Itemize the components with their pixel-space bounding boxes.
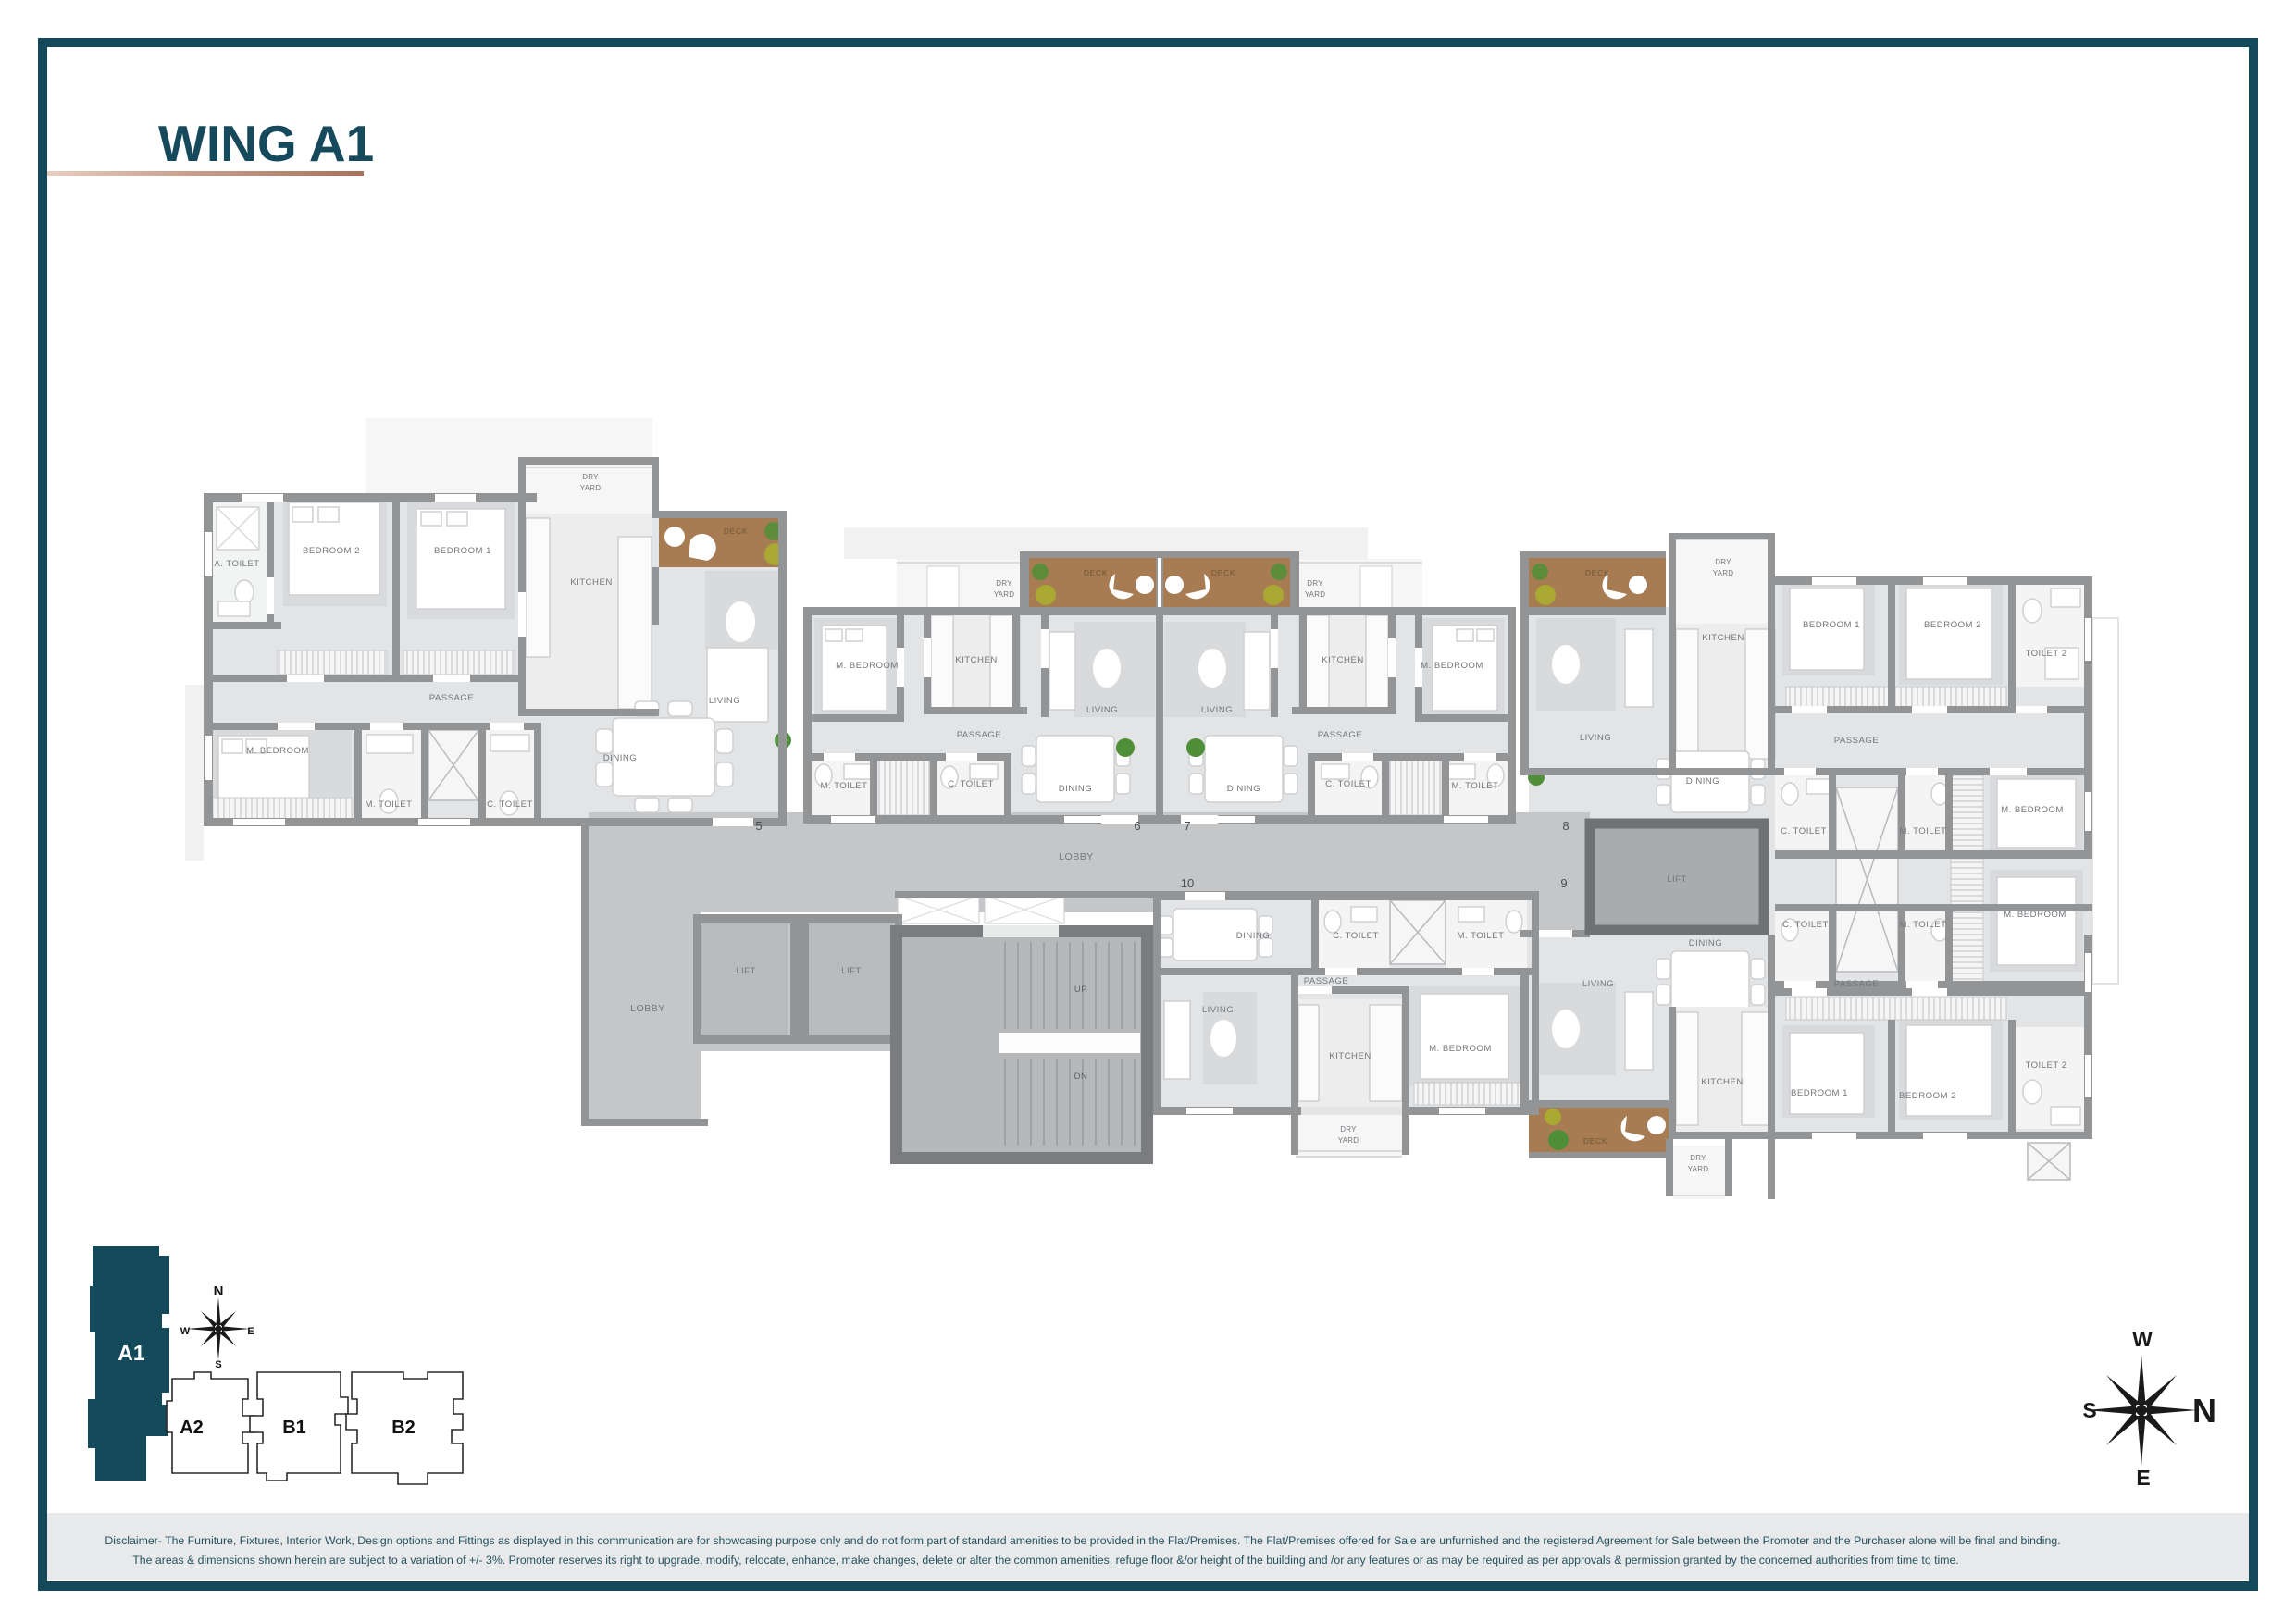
svg-text:DINING: DINING	[1686, 776, 1719, 787]
svg-text:N: N	[2192, 1392, 2216, 1430]
svg-text:DECK: DECK	[1583, 1136, 1607, 1146]
svg-text:DINING: DINING	[1059, 784, 1092, 794]
svg-text:LIVING: LIVING	[709, 696, 740, 706]
svg-text:E: E	[247, 1326, 254, 1337]
svg-text:WING A1: WING A1	[158, 115, 374, 172]
svg-text:M. TOILET: M. TOILET	[821, 781, 868, 791]
svg-text:DINING: DINING	[1236, 931, 1270, 941]
svg-text:BEDROOM 2: BEDROOM 2	[1924, 620, 1981, 630]
svg-text:BEDROOM 2: BEDROOM 2	[1899, 1091, 1956, 1101]
svg-text:C. TOILET: C. TOILET	[948, 779, 994, 789]
svg-text:LOBBY: LOBBY	[1059, 851, 1094, 862]
svg-text:LIFT: LIFT	[1667, 874, 1687, 885]
svg-text:YARD: YARD	[580, 484, 602, 492]
svg-text:DECK: DECK	[1211, 568, 1235, 577]
svg-text:DN: DN	[1074, 1072, 1088, 1082]
svg-text:A1: A1	[118, 1341, 145, 1365]
svg-text:KITCHEN: KITCHEN	[1329, 1051, 1371, 1061]
svg-text:DRY: DRY	[582, 473, 599, 481]
svg-text:8: 8	[1562, 819, 1569, 833]
svg-text:YARD: YARD	[1713, 569, 1734, 577]
svg-text:LIVING: LIVING	[1086, 705, 1118, 715]
svg-text:DECK: DECK	[1585, 568, 1609, 577]
svg-text:M. TOILET: M. TOILET	[366, 799, 413, 810]
svg-text:C. TOILET: C. TOILET	[1781, 826, 1827, 836]
svg-text:DECK: DECK	[1084, 568, 1108, 577]
svg-text:7: 7	[1184, 819, 1190, 833]
svg-text:DRY: DRY	[996, 579, 1012, 588]
svg-text:DINING: DINING	[1689, 938, 1722, 948]
svg-text:LIVING: LIVING	[1580, 733, 1611, 743]
svg-text:KITCHEN: KITCHEN	[1702, 633, 1744, 643]
svg-text:DECK: DECK	[724, 527, 748, 536]
svg-text:C. TOILET: C. TOILET	[1325, 779, 1371, 789]
svg-text:W: W	[2132, 1327, 2153, 1351]
svg-text:LIVING: LIVING	[1582, 979, 1614, 989]
svg-text:KITCHEN: KITCHEN	[1701, 1077, 1743, 1087]
svg-text:C. TOILET: C. TOILET	[1782, 920, 1829, 930]
svg-text:M. TOILET: M. TOILET	[1900, 826, 1947, 836]
svg-text:PASSAGE: PASSAGE	[1304, 976, 1349, 986]
svg-text:TOILET 2: TOILET 2	[2025, 649, 2066, 659]
svg-text:BEDROOM 1: BEDROOM 1	[1791, 1088, 1848, 1098]
svg-text:DRY: DRY	[1340, 1125, 1357, 1134]
svg-text:M. TOILET: M. TOILET	[1458, 931, 1505, 941]
svg-text:PASSAGE: PASSAGE	[1318, 730, 1363, 740]
svg-text:M. TOILET: M. TOILET	[1452, 781, 1499, 791]
svg-text:DRY: DRY	[1690, 1154, 1706, 1162]
svg-text:M. BEDROOM: M. BEDROOM	[2001, 805, 2064, 815]
svg-text:M. BEDROOM: M. BEDROOM	[1421, 661, 1483, 671]
svg-text:LIFT: LIFT	[841, 966, 862, 976]
svg-text:M. TOILET: M. TOILET	[1900, 920, 1947, 930]
svg-text:PASSAGE: PASSAGE	[1834, 736, 1880, 746]
svg-text:A. TOILET: A. TOILET	[214, 559, 259, 569]
svg-text:YARD: YARD	[1305, 590, 1326, 599]
svg-text:C. TOILET: C. TOILET	[1333, 931, 1379, 941]
svg-text:M. BEDROOM: M. BEDROOM	[2004, 910, 2066, 920]
svg-text:M. BEDROOM: M. BEDROOM	[246, 746, 309, 756]
svg-text:BEDROOM 2: BEDROOM 2	[303, 546, 360, 556]
svg-text:YARD: YARD	[994, 590, 1015, 599]
svg-text:W: W	[180, 1326, 191, 1337]
svg-text:LIVING: LIVING	[1202, 1005, 1234, 1015]
svg-text:LIVING: LIVING	[1201, 705, 1233, 715]
svg-text:DRY: DRY	[1715, 558, 1731, 566]
svg-text:DRY: DRY	[1307, 579, 1323, 588]
svg-text:A2: A2	[180, 1418, 204, 1438]
svg-text:TOILET 2: TOILET 2	[2025, 1060, 2066, 1071]
svg-text:PASSAGE: PASSAGE	[1834, 979, 1880, 989]
svg-text:LOBBY: LOBBY	[630, 1003, 665, 1014]
svg-text:YARD: YARD	[1688, 1165, 1709, 1173]
svg-text:DINING: DINING	[1227, 784, 1260, 794]
svg-text:M. BEDROOM: M. BEDROOM	[1429, 1044, 1492, 1054]
svg-text:B2: B2	[391, 1418, 416, 1438]
svg-text:10: 10	[1181, 876, 1194, 890]
svg-text:S: S	[2082, 1398, 2096, 1422]
svg-text:Disclaimer- The Furniture, Fix: Disclaimer- The Furniture, Fixtures, Int…	[105, 1534, 2060, 1547]
svg-text:UP: UP	[1074, 985, 1087, 995]
svg-text:KITCHEN: KITCHEN	[955, 655, 997, 665]
svg-text:The areas & dimensions shown h: The areas & dimensions shown herein are …	[132, 1554, 1958, 1567]
svg-text:KITCHEN: KITCHEN	[570, 577, 612, 588]
svg-text:KITCHEN: KITCHEN	[1322, 655, 1363, 665]
svg-text:BEDROOM 1: BEDROOM 1	[1803, 620, 1860, 630]
svg-text:PASSAGE: PASSAGE	[429, 693, 475, 703]
svg-text:5: 5	[755, 819, 762, 833]
svg-text:DINING: DINING	[603, 753, 637, 763]
svg-text:PASSAGE: PASSAGE	[957, 730, 1002, 740]
svg-text:M. BEDROOM: M. BEDROOM	[836, 661, 899, 671]
svg-text:YARD: YARD	[1338, 1136, 1359, 1145]
svg-text:E: E	[2136, 1466, 2150, 1490]
svg-text:C. TOILET: C. TOILET	[487, 799, 533, 810]
svg-text:6: 6	[1134, 819, 1140, 833]
svg-text:BEDROOM 1: BEDROOM 1	[434, 546, 491, 556]
svg-text:N: N	[214, 1283, 224, 1299]
svg-text:9: 9	[1560, 876, 1567, 890]
svg-text:B1: B1	[282, 1418, 306, 1438]
svg-text:LIFT: LIFT	[736, 966, 756, 976]
svg-text:S: S	[215, 1359, 221, 1370]
